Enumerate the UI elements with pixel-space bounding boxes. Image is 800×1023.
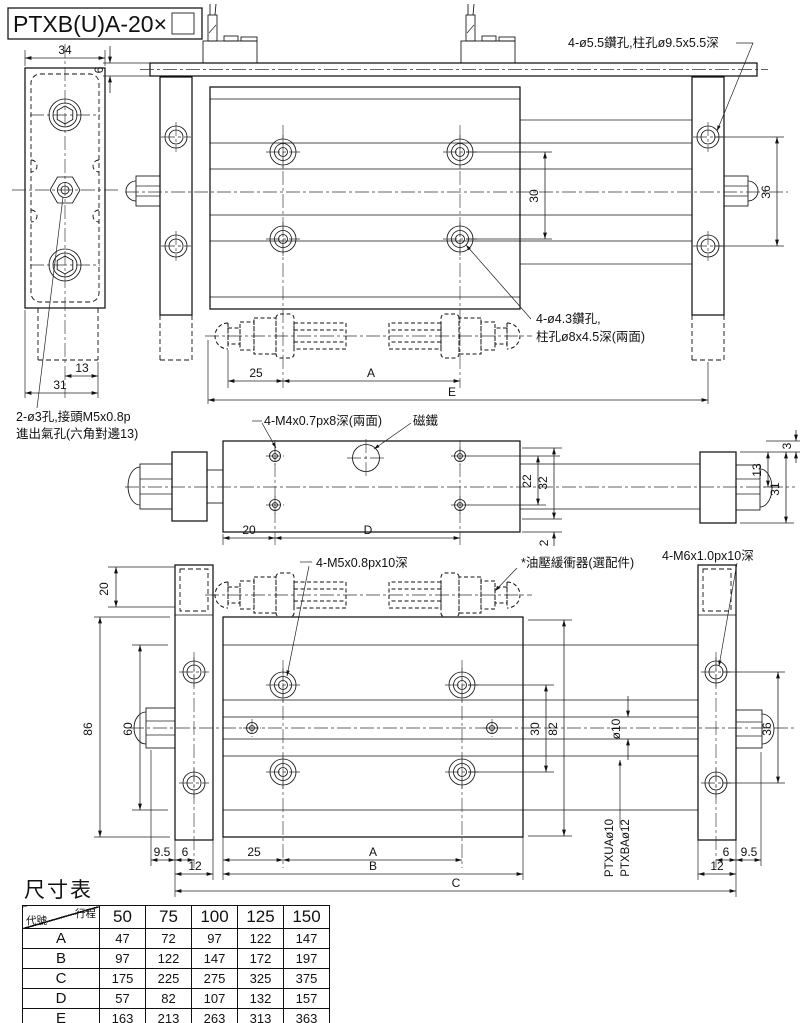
note-air-port-line1: 2-ø3孔,接頭M5x0.8p [16, 409, 131, 424]
cell: 175 [100, 969, 146, 989]
dim-C-bottom: C [452, 876, 461, 890]
dim-25-top: 25 [249, 366, 263, 380]
dim-30-top: 30 [527, 189, 541, 203]
dim-2-mid: 2 [537, 539, 551, 546]
row-label: C [23, 969, 100, 989]
cell: 82 [146, 989, 192, 1009]
cell: 325 [238, 969, 284, 989]
rod-model-ptxua: PTXUAø10 [604, 819, 616, 877]
cell: 57 [100, 989, 146, 1009]
magnet-hole [347, 439, 385, 477]
cell: 172 [238, 949, 284, 969]
table-row: D 57 82 107 132 157 [23, 989, 330, 1009]
note-magnet: 磁鐵 [413, 413, 439, 428]
row-label: A [23, 929, 100, 949]
dim-dia10-bottom: ø10 [609, 718, 623, 739]
note-tap-m6: 4-M6x1.0px10深 [662, 549, 754, 563]
dim-E-top: E [448, 385, 456, 399]
cell: 375 [284, 969, 330, 989]
drawing-canvas: PTXB(U)A-20× 34 13 31 2-ø3孔,接頭M5x0.8p 進出… [0, 0, 800, 1023]
dim-36-bottom: 36 [760, 722, 774, 736]
cell: 163 [100, 1009, 146, 1023]
table-row: B 97 122 147 172 197 [23, 949, 330, 969]
dim-3-mid: 3 [780, 442, 794, 449]
dim-30-bottom: 30 [528, 722, 542, 736]
dim-6-right: 6 [723, 845, 730, 859]
dimension-table: 行程 代號 50 75 100 125 150 A 47 72 97 122 1… [22, 905, 330, 1023]
engineering-drawing-page: PTXB(U)A-20× 34 13 31 2-ø3孔,接頭M5x0.8p 進出… [0, 0, 800, 1023]
drawing-title: PTXB(U)A-20× [13, 11, 167, 37]
bottom-view: 4-M5x0.8px10深 *油壓緩衝器(選配件) 20 [81, 556, 795, 897]
dim-A-top: A [367, 366, 375, 380]
cell: 47 [100, 929, 146, 949]
dim-13-mid: 13 [750, 463, 764, 477]
dim-12-left: 12 [188, 859, 202, 873]
dim-9p5-left: 9.5 [154, 845, 171, 859]
dim-32-mid: 32 [536, 476, 550, 490]
note-air-port-line2: 進出氣孔(六角對邊13) [16, 427, 138, 441]
cell: 122 [238, 929, 284, 949]
table-title: 尺寸表 [24, 874, 93, 904]
reed-switch-sensor-left [203, 4, 257, 63]
dim-82-bottom: 82 [546, 722, 560, 736]
title-block: PTXB(U)A-20× [8, 8, 202, 39]
cell: 263 [192, 1009, 238, 1023]
dim-25-bottom: 25 [247, 845, 261, 859]
cell: 72 [146, 929, 192, 949]
col-header: 75 [146, 906, 192, 929]
cell: 157 [284, 989, 330, 1009]
cell: 97 [192, 929, 238, 949]
note-drill-holes: 4-ø5.5鑽孔,柱孔ø9.5x5.5深 [568, 35, 719, 50]
corner-label-code: 代號 [26, 913, 47, 928]
table-header-row: 行程 代號 50 75 100 125 150 [23, 906, 330, 929]
cell: 122 [146, 949, 192, 969]
cell: 363 [284, 1009, 330, 1023]
top-view: 6 30 36 4-ø5.5鑽孔,柱孔ø9.5x5.5 [92, 4, 788, 404]
table-corner-cell: 行程 代號 [23, 906, 100, 929]
row-label: E [23, 1009, 100, 1023]
dim-20-bottom: 20 [97, 582, 111, 596]
dim-22-mid: 22 [520, 474, 534, 488]
dim-86-bottom: 86 [81, 722, 95, 736]
dim-31-mid: 31 [768, 482, 782, 496]
dim-D-mid: D [364, 523, 373, 537]
cell: 275 [192, 969, 238, 989]
note-counterbore-line1: 4-ø4.3鑽孔, [536, 311, 601, 326]
dim-36-top: 36 [759, 185, 773, 199]
table-row: C 175 225 275 325 375 [23, 969, 330, 989]
col-header: 50 [100, 906, 146, 929]
cell: 132 [238, 989, 284, 1009]
reed-switch-sensor-right [461, 4, 515, 63]
table-row: A 47 72 97 122 147 [23, 929, 330, 949]
col-header: 100 [192, 906, 238, 929]
note-shock-absorber: *油壓緩衝器(選配件) [521, 556, 634, 570]
cell: 147 [192, 949, 238, 969]
dim-31-side: 31 [53, 378, 67, 392]
stroke-placeholder-box [172, 13, 194, 34]
dim-9p5-right: 9.5 [741, 845, 758, 859]
note-tap-m5: 4-M5x0.8px10深 [316, 556, 408, 570]
rod-model-ptxba: PTXBAø12 [620, 819, 632, 877]
dim-B-bottom: B [369, 859, 377, 873]
dim-A-bottom: A [369, 845, 377, 859]
cell: 225 [146, 969, 192, 989]
dim-12-right: 12 [710, 859, 724, 873]
middle-view: 4-M4x0.7px8深(兩面) 磁鐵 22 32 2 13 31 3 20 D… [125, 413, 800, 666]
dim-6-left: 6 [182, 845, 189, 859]
row-label: B [23, 949, 100, 969]
row-label: D [23, 989, 100, 1009]
col-header: 125 [238, 906, 284, 929]
note-counterbore-line2: 柱孔ø8x4.5深(兩面) [536, 329, 645, 344]
side-view: 34 13 31 2-ø3孔,接頭M5x0.8p 進出氣孔(六角對邊13) [12, 43, 138, 441]
cell: 107 [192, 989, 238, 1009]
corner-label-stroke: 行程 [75, 906, 96, 921]
dim-6-top: 6 [92, 66, 106, 73]
note-tap-m4: 4-M4x0.7px8深(兩面) [264, 414, 382, 428]
table-row: E 163 213 263 313 363 [23, 1009, 330, 1023]
cell: 313 [238, 1009, 284, 1023]
dim-20-mid: 20 [242, 523, 256, 537]
col-header: 150 [284, 906, 330, 929]
dim-13-side: 13 [75, 361, 89, 375]
cell: 213 [146, 1009, 192, 1023]
cell: 147 [284, 929, 330, 949]
dim-60-bottom: 60 [121, 722, 135, 736]
cell: 197 [284, 949, 330, 969]
cell: 97 [100, 949, 146, 969]
